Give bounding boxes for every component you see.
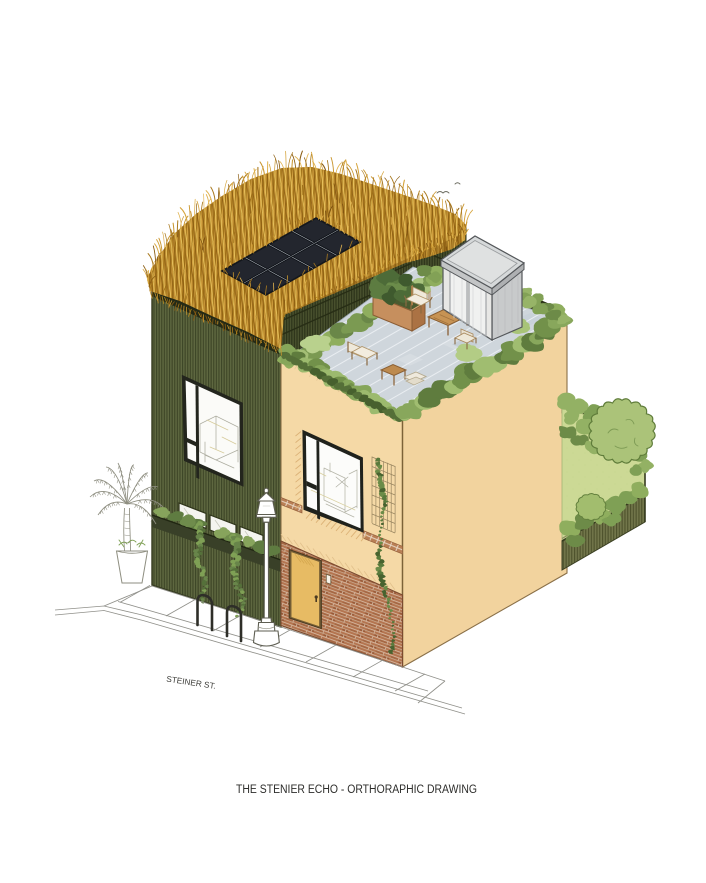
svg-text:THE STENIER ECHO - ORTHORAPHIC: THE STENIER ECHO - ORTHORAPHIC DRAWING xyxy=(236,782,477,796)
svg-text:STEINER ST.: STEINER ST. xyxy=(166,674,217,691)
